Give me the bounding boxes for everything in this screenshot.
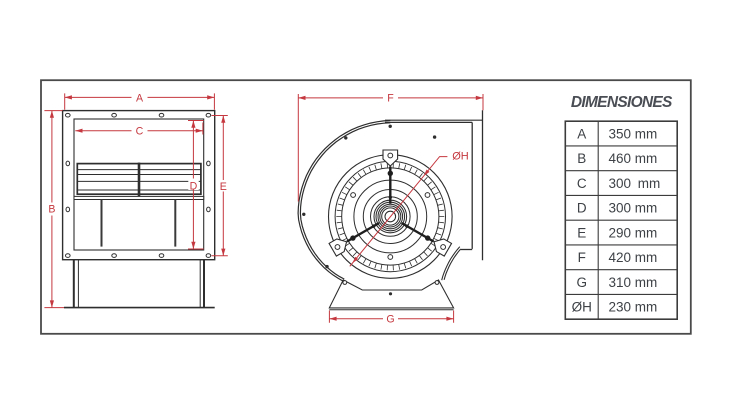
svg-text:C: C [136,125,144,137]
svg-text:420 mm: 420 mm [609,250,658,265]
svg-text:G: G [577,275,588,290]
svg-text:300 mm: 300 mm [609,176,661,191]
svg-text:290 mm: 290 mm [609,225,658,240]
svg-text:ØH: ØH [572,300,592,315]
svg-text:E: E [577,225,586,240]
svg-text:C: C [577,176,587,191]
svg-text:ØH: ØH [452,151,469,163]
svg-text:A: A [136,92,144,104]
svg-text:D: D [577,201,587,216]
svg-text:G: G [386,313,394,325]
svg-text:350 mm: 350 mm [609,126,658,141]
svg-text:460 mm: 460 mm [609,151,658,166]
svg-text:B: B [577,151,586,166]
svg-text:F: F [578,250,586,265]
svg-text:F: F [387,93,394,105]
svg-text:230 mm: 230 mm [609,300,658,315]
svg-text:DIMENSIONES: DIMENSIONES [571,94,673,111]
svg-text:B: B [48,204,55,216]
svg-text:300 mm: 300 mm [609,201,658,216]
svg-text:A: A [577,126,586,141]
svg-text:D: D [190,180,198,192]
svg-text:310 mm: 310 mm [609,275,658,290]
svg-text:E: E [220,181,227,193]
